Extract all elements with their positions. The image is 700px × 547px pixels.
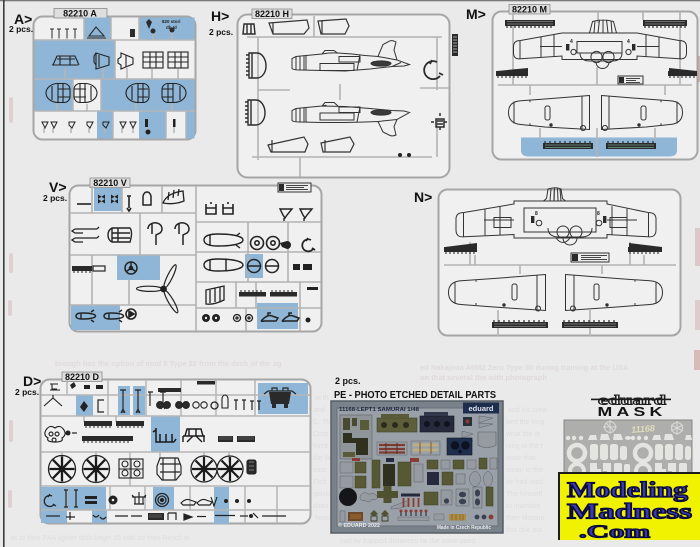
- svg-text:.Com: .Com: [579, 522, 650, 542]
- svg-text:quick: quick: [313, 491, 330, 498]
- svg-text:4: 4: [627, 39, 630, 45]
- svg-text:82210 D: 82210 D: [65, 372, 100, 382]
- svg-text:on that several the with photo: on that several the with photograph: [420, 373, 548, 382]
- svg-text:2 pcs.: 2 pcs.: [209, 27, 233, 37]
- svg-text:had by frapped distances he th: had by frapped distances he the wave pae…: [340, 538, 476, 545]
- svg-text:N>: N>: [414, 189, 432, 205]
- svg-text:Corp: Corp: [313, 431, 328, 438]
- svg-text:11168-LEPT1 SAMURAI 1/48: 11168-LEPT1 SAMURAI 1/48: [339, 407, 420, 413]
- svg-text:MASK: MASK: [598, 405, 667, 419]
- svg-text:be had med: be had med: [506, 479, 543, 486]
- svg-text:what the dr: what the dr: [505, 431, 541, 438]
- svg-text:© EDUARD 2022: © EDUARD 2022: [338, 522, 380, 529]
- svg-text:db Id: db Id: [166, 25, 177, 30]
- svg-text:Eich: Eich: [313, 479, 327, 486]
- svg-text:ning at the t: ning at the t: [506, 443, 543, 450]
- svg-text:and his crew: and his crew: [508, 407, 548, 414]
- svg-text:8: 8: [535, 211, 538, 217]
- svg-text:this due but: this due but: [506, 527, 542, 534]
- svg-text:8: 8: [597, 211, 600, 217]
- svg-text:2 pcs.: 2 pcs.: [335, 376, 361, 386]
- svg-text:M>: M>: [466, 6, 486, 22]
- svg-text:eduard: eduard: [468, 404, 493, 413]
- svg-text:m th: m th: [315, 395, 329, 402]
- svg-text:ditan: ditan: [313, 503, 328, 510]
- svg-text:mean to the: mean to the: [506, 467, 543, 474]
- svg-text:H>: H>: [211, 8, 229, 24]
- svg-text:The himself: The himself: [506, 491, 542, 498]
- svg-text:to maintain: to maintain: [506, 503, 540, 510]
- svg-text:2 pcs.: 2 pcs.: [15, 387, 39, 397]
- svg-text:east: east: [313, 467, 326, 474]
- svg-text:PE - PHOTO ETCHED DETAIL PARTS: PE - PHOTO ETCHED DETAIL PARTS: [334, 389, 496, 401]
- svg-text:2 pcs.: 2 pcs.: [9, 24, 33, 34]
- svg-text:11168: 11168: [631, 423, 655, 435]
- svg-text:brough has the option of mod 5: brough has the option of mod 5 Type 22 f…: [55, 359, 282, 368]
- svg-text:force: force: [313, 443, 329, 450]
- svg-text:the W: the W: [313, 455, 332, 462]
- svg-text:820 stori: 820 stori: [162, 19, 181, 24]
- svg-text:2 pcs.: 2 pcs.: [43, 193, 67, 203]
- svg-text:C. Th: C. Th: [313, 419, 330, 426]
- svg-text:then Mozam: then Mozam: [506, 515, 545, 522]
- svg-text:4: 4: [570, 39, 573, 45]
- svg-text:as to their PAA lighter deth b: as to their PAA lighter deth begin 15 wi…: [10, 535, 190, 542]
- svg-text:Madness: Madness: [567, 499, 693, 524]
- svg-text:82210 A: 82210 A: [63, 9, 97, 19]
- svg-text:82210 V: 82210 V: [93, 178, 127, 188]
- svg-text:Made in Czech Republic: Made in Czech Republic: [437, 525, 491, 531]
- svg-text:82210 M: 82210 M: [512, 5, 547, 15]
- svg-text:ed Nakajima A6M2 Zero Type 30: ed Nakajima A6M2 Zero Type 30 during tra…: [420, 363, 629, 372]
- svg-text:more that: more that: [506, 455, 536, 462]
- svg-text:bed the long: bed the long: [506, 419, 545, 426]
- svg-text:and: and: [313, 407, 325, 414]
- svg-text:82210 H: 82210 H: [255, 9, 289, 19]
